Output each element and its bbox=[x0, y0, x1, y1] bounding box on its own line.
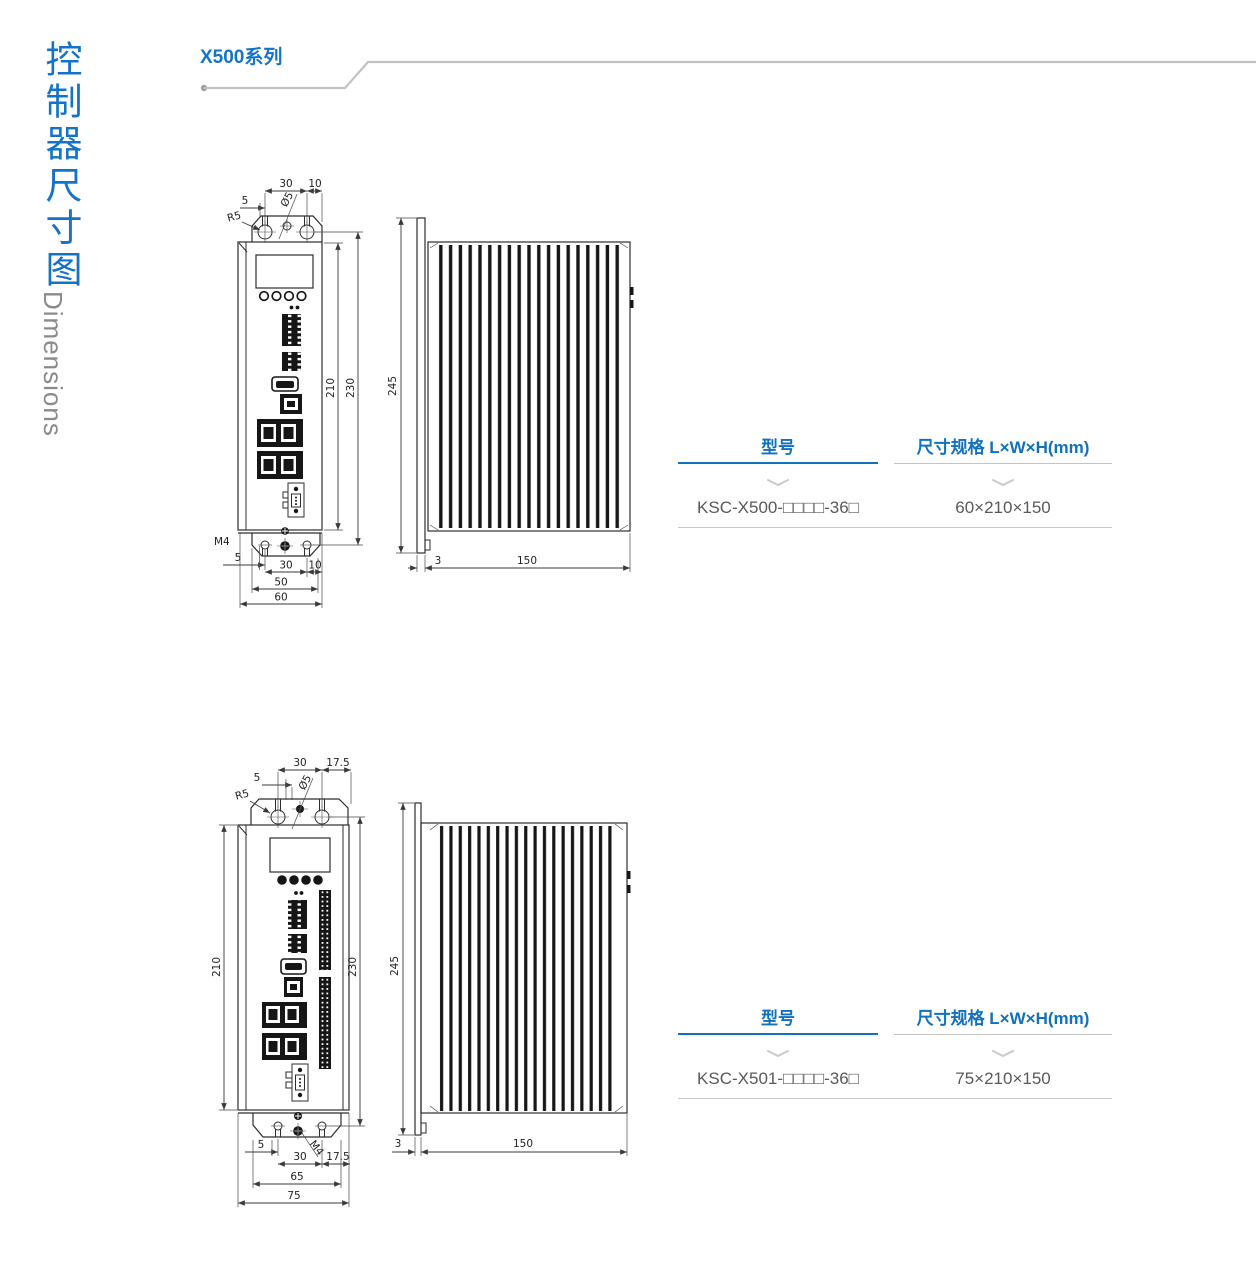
dim-height-bracket: 230 bbox=[347, 957, 359, 977]
size-value: 75×210×150 bbox=[894, 1069, 1112, 1089]
dim-depth: 150 bbox=[513, 1138, 533, 1150]
dim-total-width: 75 bbox=[287, 1190, 300, 1202]
dim-top-offset: 17.5 bbox=[326, 757, 349, 769]
dim-corner-radius: R5 bbox=[226, 209, 243, 224]
power-connector bbox=[286, 1064, 308, 1101]
dim-hole-dia: Ø5 bbox=[279, 190, 297, 209]
usb-port bbox=[284, 977, 303, 997]
terminal-block-2 bbox=[282, 352, 301, 371]
dim-height-body: 210 bbox=[211, 957, 223, 977]
model-column-header: 型号 bbox=[678, 1004, 878, 1029]
bottom-slot-left bbox=[271, 1122, 285, 1137]
dim-bottom-offset: 17.5 bbox=[326, 1151, 349, 1163]
dim-top-offset: 10 bbox=[308, 178, 321, 190]
chevron-down-icon bbox=[894, 1045, 1112, 1063]
page: 控制器尺寸图 Dimensions X500系列 bbox=[0, 0, 1256, 1272]
ground-screws bbox=[277, 527, 293, 554]
terminal-block-1 bbox=[282, 314, 301, 346]
ethernet-ports-1 bbox=[262, 1002, 307, 1028]
dim-top-edge: 5 bbox=[242, 195, 249, 207]
dim-plate-thickness: 3 bbox=[435, 555, 442, 567]
dim-plate-thickness: 3 bbox=[395, 1138, 402, 1150]
model-value: KSC-X500-□□□□-36□ bbox=[678, 498, 878, 518]
dim-bottom-span: 65 bbox=[290, 1171, 303, 1183]
dim-hole-dia: Ø5 bbox=[297, 773, 315, 792]
ethernet-ports-1 bbox=[257, 419, 303, 447]
model-value: KSC-X501-□□□□-36□ bbox=[678, 1069, 878, 1089]
dim-top-width: 30 bbox=[293, 757, 306, 769]
panel-buttons bbox=[260, 292, 306, 301]
ethernet-ports-2 bbox=[257, 451, 303, 479]
dim-corner-radius: R5 bbox=[234, 787, 251, 802]
dim-side-height: 245 bbox=[389, 956, 401, 976]
chevron-down-icon bbox=[678, 474, 878, 492]
heatsink-fins bbox=[437, 826, 616, 1111]
dim-bottom-edge: 5 bbox=[258, 1139, 265, 1151]
panel-buttons bbox=[277, 875, 323, 885]
table-bottom-border bbox=[678, 527, 1112, 528]
x501-dimension-drawing: 30 17.5 5 Ø5 R5 210 230 M4 5 30 17.5 bbox=[0, 730, 680, 1220]
heatsink-fins bbox=[436, 245, 622, 528]
size-column-header: 尺寸规格 L×W×H(mm) bbox=[894, 433, 1112, 458]
model-column-underline bbox=[678, 462, 878, 464]
x500-dimension-drawing: 30 10 5 Ø5 R5 210 230 M4 5 30 10 bbox=[0, 150, 680, 620]
ethernet-ports-2 bbox=[262, 1033, 307, 1060]
dim-bottom-span: 50 bbox=[274, 577, 287, 589]
hdmi-port bbox=[281, 959, 306, 974]
x501-side-view: 245 3 150 bbox=[389, 803, 631, 1156]
size-column-header: 尺寸规格 L×W×H(mm) bbox=[894, 1004, 1112, 1029]
dim-top-width: 30 bbox=[279, 178, 292, 190]
bottom-slot-right bbox=[315, 1122, 329, 1137]
terminal-block-1 bbox=[288, 900, 307, 929]
size-value: 60×210×150 bbox=[894, 498, 1112, 518]
dim-bottom-width: 30 bbox=[279, 560, 292, 572]
terminal-block-2 bbox=[288, 934, 307, 953]
io-header-2 bbox=[319, 977, 331, 1069]
x501-front-view bbox=[238, 799, 349, 1139]
io-header-1 bbox=[319, 890, 331, 970]
model-column-underline bbox=[678, 1033, 878, 1035]
status-leds bbox=[294, 891, 303, 895]
dim-bottom-offset: 10 bbox=[308, 560, 321, 572]
dim-top-edge: 5 bbox=[254, 772, 261, 784]
header-rule bbox=[0, 0, 1256, 100]
size-column-underline bbox=[894, 463, 1112, 464]
power-connector bbox=[283, 483, 304, 517]
dim-side-height: 245 bbox=[387, 376, 399, 396]
dim-height-bracket: 230 bbox=[345, 378, 357, 398]
dim-bottom-width: 30 bbox=[293, 1151, 306, 1163]
usb-port bbox=[280, 394, 302, 414]
spec-table-x501: 型号 尺寸规格 L×W×H(mm) KSC-X501-□□□□-36□ 75×2… bbox=[678, 1001, 1112, 1101]
x500-front-view bbox=[238, 216, 322, 556]
size-column-underline bbox=[894, 1034, 1112, 1035]
dim-height-body: 210 bbox=[325, 378, 337, 398]
chevron-down-icon bbox=[678, 1045, 878, 1063]
chevron-down-icon bbox=[894, 474, 1112, 492]
dim-screw: M4 bbox=[214, 536, 230, 548]
dim-total-width: 60 bbox=[274, 592, 287, 604]
x500-side-view: 245 3 150 bbox=[387, 218, 634, 572]
table-bottom-border bbox=[678, 1098, 1112, 1099]
dim-depth: 150 bbox=[517, 555, 537, 567]
display-panel bbox=[256, 255, 313, 288]
display-panel bbox=[270, 838, 330, 872]
spec-table-x500: 型号 尺寸规格 L×W×H(mm) KSC-X500-□□□□-36□ 60×2… bbox=[678, 430, 1112, 530]
hdmi-port bbox=[272, 377, 298, 391]
status-leds bbox=[290, 306, 300, 310]
model-column-header: 型号 bbox=[678, 433, 878, 458]
